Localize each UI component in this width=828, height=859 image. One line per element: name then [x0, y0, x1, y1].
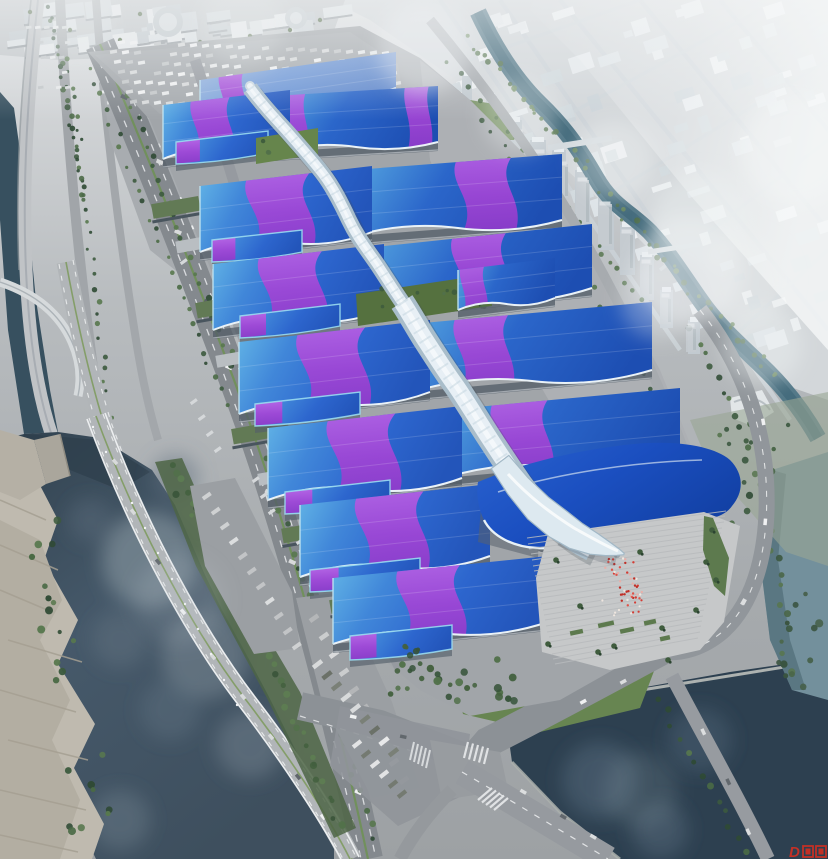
svg-text:D: D: [789, 844, 800, 859]
